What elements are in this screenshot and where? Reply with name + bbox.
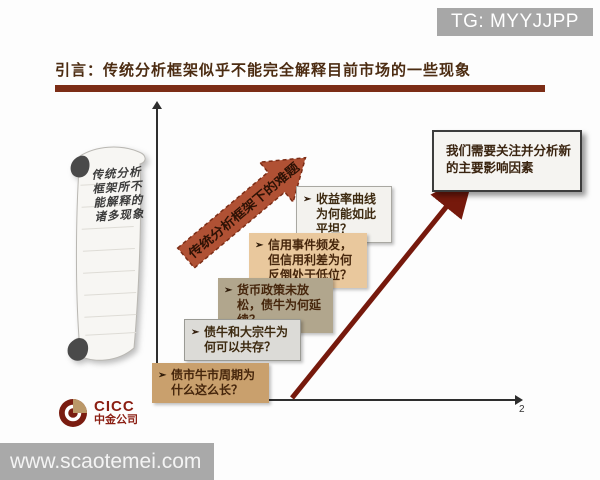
question-text: 债牛和大宗牛为何可以共存？ xyxy=(204,325,295,355)
y-axis-line xyxy=(156,107,158,400)
arrow-bullet-icon: ➢ xyxy=(191,325,204,340)
question-text: 债市牛市周期为什么这么长？ xyxy=(171,368,264,398)
tg-watermark: TG: MYYJJPP xyxy=(437,8,593,36)
arrow-bullet-icon: ➢ xyxy=(224,283,237,298)
y-axis-arrowhead-icon xyxy=(152,101,162,109)
url-watermark: www.scaotemei.com xyxy=(0,443,214,480)
conclusion-box: 我们需要关注并分析新的主要影响因素 xyxy=(432,130,582,192)
scroll-note: 传统分析 框架所不 能解释的 诸多现象 xyxy=(91,165,151,225)
arrow-bullet-icon: ➢ xyxy=(255,238,268,253)
arrow-bullet-icon: ➢ xyxy=(303,192,316,207)
question-box-bond-commodity: ➢ 债牛和大宗牛为何可以共存？ xyxy=(184,319,301,361)
question-text: 收益率曲线为何能如此平坦？ xyxy=(316,192,386,237)
cicc-logo-icon xyxy=(58,398,88,428)
question-text: 信用事件频发，但信用利差为何反倒处于低位？ xyxy=(268,238,362,283)
slide-title: 引言：传统分析框架似乎不能完全解释目前市场的一些现象 xyxy=(55,59,555,80)
title-accent-bar xyxy=(55,85,545,92)
cicc-logo: CICC 中金公司 xyxy=(58,398,138,428)
presentation-slide: TG: MYYJJPP 引言：传统分析框架似乎不能完全解释目前市场的一些现象 传… xyxy=(0,0,600,480)
arrow-bullet-icon: ➢ xyxy=(158,368,171,383)
logo-text-en: CICC xyxy=(94,400,138,414)
question-box-bull-cycle: ➢ 债市牛市周期为什么这么长？ xyxy=(152,363,269,403)
logo-text-cn: 中金公司 xyxy=(94,414,138,426)
page-number: 2 xyxy=(519,404,525,415)
